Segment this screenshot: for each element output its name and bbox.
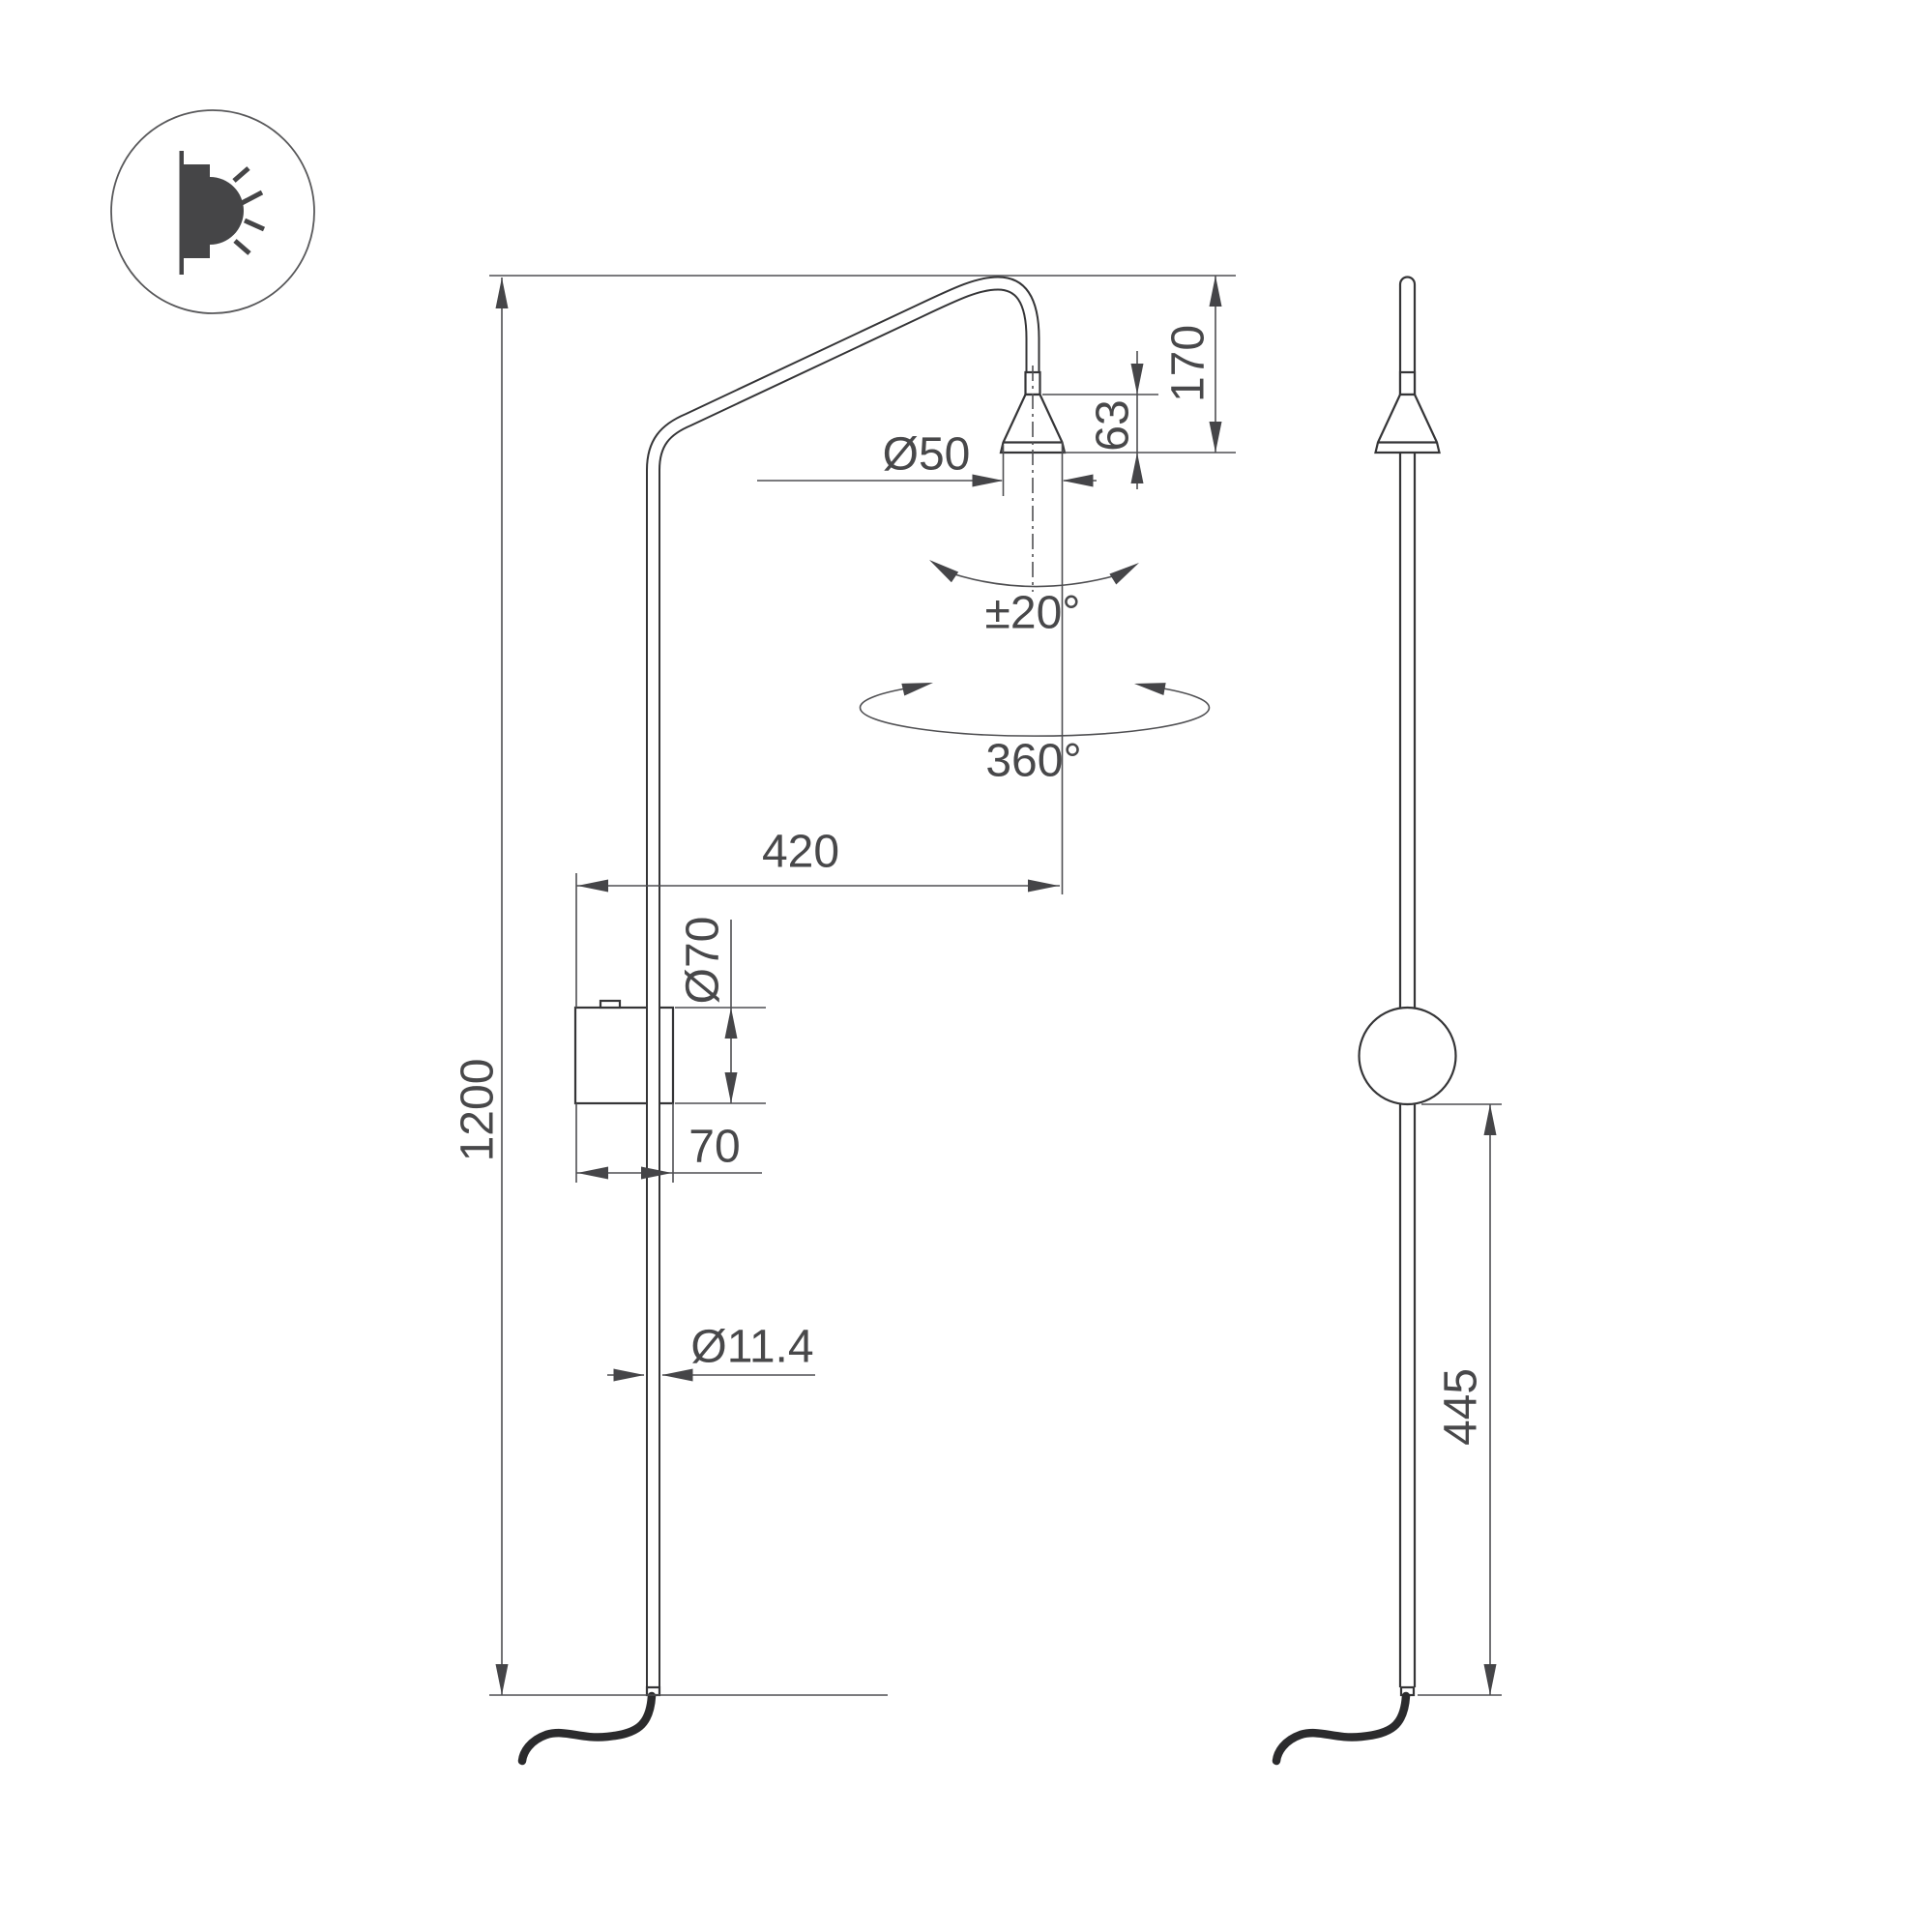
arrowhead-up — [496, 278, 509, 308]
arrowhead-left — [925, 555, 958, 583]
technical-drawing-page: 420 Ø50 ±20° 360° 70 Ø11.4 1200 Ø70 63 1… — [0, 0, 1932, 1932]
head-diameter-label: Ø50 — [883, 429, 971, 481]
arrowhead-right — [973, 475, 1004, 487]
side-power-cable — [1276, 1696, 1406, 1761]
side-view — [1276, 278, 1456, 1762]
arm-reach-label: 420 — [762, 827, 839, 878]
tube-diameter-label: Ø11.4 — [690, 1322, 813, 1373]
drawing-canvas: 420 Ø50 ±20° 360° 70 Ø11.4 1200 Ø70 63 1… — [0, 0, 1932, 1932]
side-lamp-head-band — [1400, 372, 1415, 395]
arrowhead-down — [496, 1664, 509, 1695]
arrowhead-down — [725, 1072, 738, 1103]
arrowhead-left — [901, 677, 934, 696]
arrowhead-right — [1109, 557, 1142, 584]
head-cone-height-label: 63 — [1088, 399, 1139, 451]
arrowhead-down — [1131, 364, 1144, 395]
rotation-indicator — [861, 677, 1210, 736]
side-lamp-head-cone — [1376, 395, 1440, 453]
arrowhead-left — [577, 880, 608, 893]
rotation-ellipse-arc — [861, 688, 1210, 736]
side-pole-top-cap — [1400, 278, 1415, 285]
arrowhead-right — [1133, 678, 1166, 695]
arrowhead-left — [1063, 475, 1094, 487]
arrowhead-left — [577, 1167, 608, 1180]
arrowhead-right — [1028, 880, 1059, 893]
total-height-label: 1200 — [453, 1059, 504, 1162]
arrowhead-up — [1484, 1104, 1497, 1135]
tilt-arc — [943, 571, 1127, 587]
arrowhead-up — [1131, 453, 1144, 483]
front-view — [522, 283, 1065, 1761]
arrowhead-down — [1484, 1664, 1497, 1695]
tilt-range-label: ±20° — [985, 588, 1081, 639]
tilt-indicator — [925, 555, 1142, 587]
arrowhead-up — [725, 1008, 738, 1039]
icon-wall-line — [180, 151, 185, 275]
box-diameter-label: Ø70 — [678, 917, 729, 1005]
mount-sphere — [1360, 1008, 1456, 1104]
sphere-to-base-label: 445 — [1436, 1368, 1487, 1446]
wall-light-icon — [111, 110, 314, 313]
rotation-range-label: 360° — [985, 736, 1081, 787]
driver-box-button — [600, 1001, 620, 1008]
power-cable — [522, 1696, 652, 1761]
arrowhead-right — [614, 1369, 645, 1382]
icon-lamp-body — [184, 164, 210, 258]
arrowhead-up — [1210, 276, 1222, 307]
arrowhead-down — [1210, 422, 1222, 453]
arrowhead-left — [662, 1369, 693, 1382]
dimension-1200 — [489, 276, 1236, 1695]
head-drop-label: 170 — [1163, 325, 1215, 402]
box-depth-label: 70 — [688, 1122, 740, 1173]
